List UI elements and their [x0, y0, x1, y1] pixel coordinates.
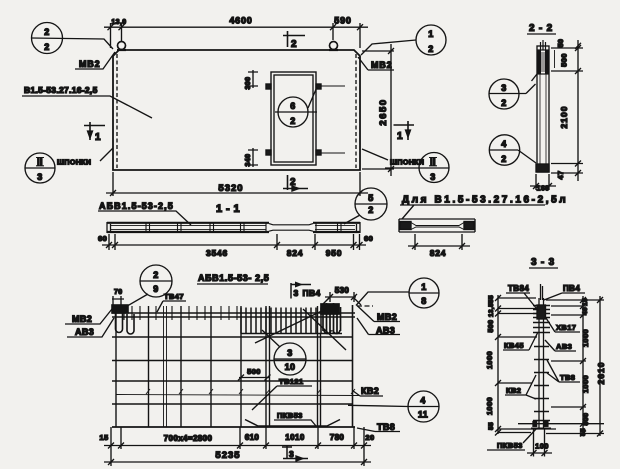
- svg-text:АВ3: АВ3: [75, 327, 94, 337]
- svg-text:2: 2: [290, 116, 295, 126]
- svg-text:2: 2: [44, 27, 49, 37]
- svg-text:В1.5-53.27.16-2,5: В1.5-53.27.16-2,5: [24, 85, 98, 95]
- svg-text:824: 824: [430, 248, 447, 258]
- svg-text:ПВ4: ПВ4: [563, 284, 580, 293]
- svg-text:АБВ1.5-53-2,5: АБВ1.5-53-2,5: [99, 201, 174, 211]
- svg-text:КВ45: КВ45: [504, 341, 524, 350]
- svg-text:3546: 3546: [206, 248, 228, 258]
- svg-text:100: 100: [535, 442, 549, 451]
- svg-text:3: 3: [501, 83, 506, 93]
- svg-text:500: 500: [583, 413, 590, 426]
- svg-text:1: 1: [95, 132, 101, 143]
- svg-text:2: 2: [501, 154, 506, 164]
- svg-text:3 - 3: 3 - 3: [531, 257, 555, 268]
- svg-text:500: 500: [247, 367, 261, 376]
- svg-text:11: 11: [418, 410, 428, 420]
- svg-text:1000: 1000: [581, 375, 590, 393]
- svg-text:700х4=2800: 700х4=2800: [164, 434, 213, 443]
- svg-text:3: 3: [430, 172, 435, 182]
- svg-text:ТВ47: ТВ47: [164, 292, 184, 301]
- svg-text:60: 60: [98, 234, 107, 243]
- svg-text:13,0: 13,0: [111, 19, 126, 26]
- svg-text:10: 10: [285, 362, 296, 372]
- svg-text:160: 160: [537, 186, 550, 193]
- svg-text:610: 610: [245, 433, 260, 442]
- svg-text:2: 2: [44, 42, 49, 52]
- svg-text:500: 500: [560, 53, 569, 67]
- svg-text:ПКВ53: ПКВ53: [277, 411, 303, 420]
- svg-text:МВ2: МВ2: [79, 59, 100, 69]
- svg-text:5320: 5320: [218, 183, 243, 194]
- svg-text:6: 6: [290, 101, 295, 111]
- svg-text:1 - 1: 1 - 1: [216, 203, 240, 215]
- svg-text:3: 3: [287, 348, 292, 358]
- svg-text:2: 2: [501, 98, 506, 108]
- svg-text:824: 824: [287, 248, 304, 258]
- svg-text:1000: 1000: [581, 329, 590, 347]
- svg-text:70: 70: [114, 289, 123, 296]
- svg-text:2650: 2650: [378, 98, 389, 125]
- svg-text:2: 2: [428, 44, 433, 54]
- svg-text:1: 1: [397, 131, 403, 142]
- svg-text:8: 8: [421, 296, 426, 306]
- svg-text:55: 55: [488, 422, 495, 430]
- svg-text:2: 2: [153, 270, 158, 280]
- svg-text:ШПОНКИ: ШПОНКИ: [390, 160, 424, 167]
- svg-text:КВ2: КВ2: [361, 386, 379, 396]
- svg-text:15: 15: [582, 298, 589, 306]
- svg-text:2: 2: [368, 205, 373, 215]
- svg-text:1000: 1000: [485, 351, 494, 369]
- svg-text:4: 4: [420, 396, 425, 406]
- svg-text:4: 4: [501, 139, 506, 149]
- svg-text:2: 2: [291, 39, 297, 50]
- svg-text:50: 50: [558, 39, 565, 48]
- svg-text:13,5: 13,5: [488, 303, 495, 317]
- svg-text:2100: 2100: [559, 106, 569, 129]
- svg-text:40: 40: [582, 307, 589, 315]
- svg-text:ТВ8: ТВ8: [560, 373, 575, 382]
- svg-text:МВ2: МВ2: [371, 60, 392, 70]
- svg-text:ХВ17: ХВ17: [556, 323, 576, 332]
- svg-text:2610: 2610: [596, 362, 606, 385]
- svg-text:5: 5: [368, 193, 373, 203]
- svg-text:3: 3: [294, 288, 299, 298]
- svg-text:1010: 1010: [285, 433, 305, 442]
- svg-text:МВ2: МВ2: [377, 312, 397, 322]
- svg-text:АВ3: АВ3: [556, 342, 572, 351]
- svg-text:3: 3: [289, 449, 294, 459]
- svg-text:Для В1.5-53.27.16-2,5л: Для В1.5-53.27.16-2,5л: [402, 195, 568, 206]
- svg-text:780: 780: [330, 433, 345, 442]
- svg-text:АБВ1.5-53- 2,5: АБВ1.5-53- 2,5: [198, 273, 269, 283]
- svg-text:2 - 2: 2 - 2: [529, 23, 553, 34]
- svg-text:340: 340: [245, 154, 252, 167]
- svg-text:5235: 5235: [215, 450, 240, 461]
- svg-text:ТВ121: ТВ121: [279, 377, 304, 386]
- svg-text:950: 950: [326, 248, 343, 258]
- svg-text:2: 2: [290, 177, 296, 188]
- svg-text:9: 9: [153, 284, 158, 294]
- svg-text:ШПОНКИ: ШПОНКИ: [57, 160, 91, 167]
- svg-text:47: 47: [556, 170, 565, 179]
- svg-text:ПВ4: ПВ4: [303, 288, 321, 298]
- svg-text:590: 590: [334, 16, 351, 26]
- svg-text:ТВ84: ТВ84: [508, 284, 529, 293]
- svg-text:55: 55: [580, 428, 587, 436]
- svg-text:1: 1: [421, 282, 426, 292]
- svg-text:ТВ8: ТВ8: [377, 422, 395, 432]
- svg-text:300: 300: [245, 77, 252, 90]
- svg-text:ПКВ53: ПКВ53: [497, 441, 523, 450]
- svg-text:1: 1: [428, 29, 433, 39]
- svg-text:60: 60: [364, 234, 373, 243]
- svg-text:1000: 1000: [485, 397, 494, 415]
- svg-text:55: 55: [488, 295, 495, 303]
- svg-text:530: 530: [335, 286, 350, 295]
- svg-text:500: 500: [488, 320, 495, 333]
- svg-text:20: 20: [365, 433, 374, 442]
- svg-text:МВ2: МВ2: [72, 314, 92, 324]
- svg-text:15: 15: [99, 433, 108, 442]
- svg-text:4600: 4600: [229, 16, 252, 26]
- svg-text:КВ2: КВ2: [506, 386, 521, 395]
- svg-text:3: 3: [37, 172, 42, 182]
